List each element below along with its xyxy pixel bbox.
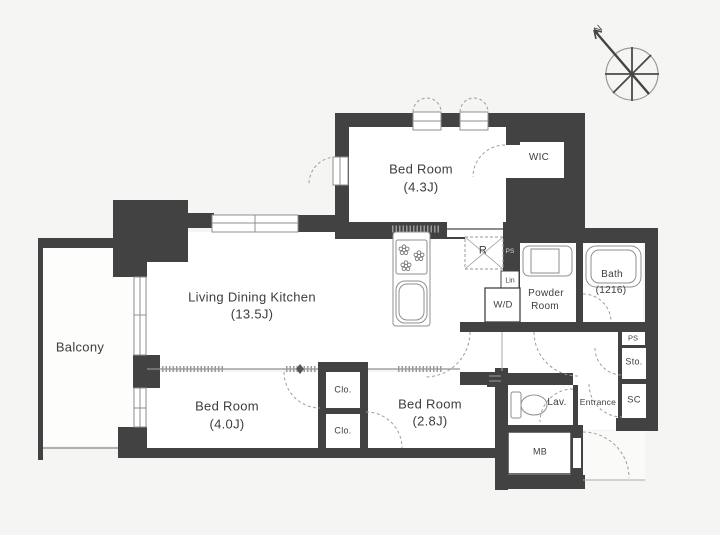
balcony-label: Balcony xyxy=(56,341,104,354)
shoe-closet-label: SC xyxy=(627,395,641,405)
bedroom-left-label: Bed Room xyxy=(195,400,259,413)
ldk-label: Living Dining Kitchen xyxy=(188,291,316,304)
washer-dryer-label: W/D xyxy=(493,300,512,310)
bedroom-left-size: (4.0J) xyxy=(209,418,244,431)
bedroom-right-label: Bed Room xyxy=(398,398,462,411)
closet-lower-label: Clo. xyxy=(334,427,351,436)
floor-plan-drawing xyxy=(0,0,720,535)
bedroom-top-size: (4.3J) xyxy=(403,181,438,194)
wic-label: WIC xyxy=(529,153,549,163)
storage-label: Sto. xyxy=(625,358,642,367)
linen-label: Lin xyxy=(505,278,514,285)
ldk-size: (13.5J) xyxy=(231,308,274,321)
compass-icon xyxy=(594,30,659,101)
lavatory-label: Lav. xyxy=(547,398,566,408)
vanity-icon xyxy=(523,246,572,276)
refrigerator-label: R xyxy=(479,246,487,257)
entrance-label: Entrance xyxy=(580,398,616,407)
powder-room-label-1: Powder xyxy=(528,289,564,299)
closet-upper-label: Clo. xyxy=(334,386,351,395)
bath-label: Bath xyxy=(601,270,623,280)
pipe-space-kitchen-label: PS xyxy=(506,249,515,256)
powder-room-label-2: Room xyxy=(531,302,559,312)
bedroom-top-label: Bed Room xyxy=(389,163,453,176)
bath-size: (1216) xyxy=(596,286,627,296)
bedroom-right-size: (2.8J) xyxy=(412,415,447,428)
meter-box-label: MB xyxy=(533,448,547,457)
floor-plan: Balcony Living Dining Kitchen (13.5J) Be… xyxy=(0,0,720,535)
sink-icon xyxy=(396,281,427,323)
bathtub-icon xyxy=(586,246,641,287)
pipe-space-entry-label: PS xyxy=(628,334,638,342)
